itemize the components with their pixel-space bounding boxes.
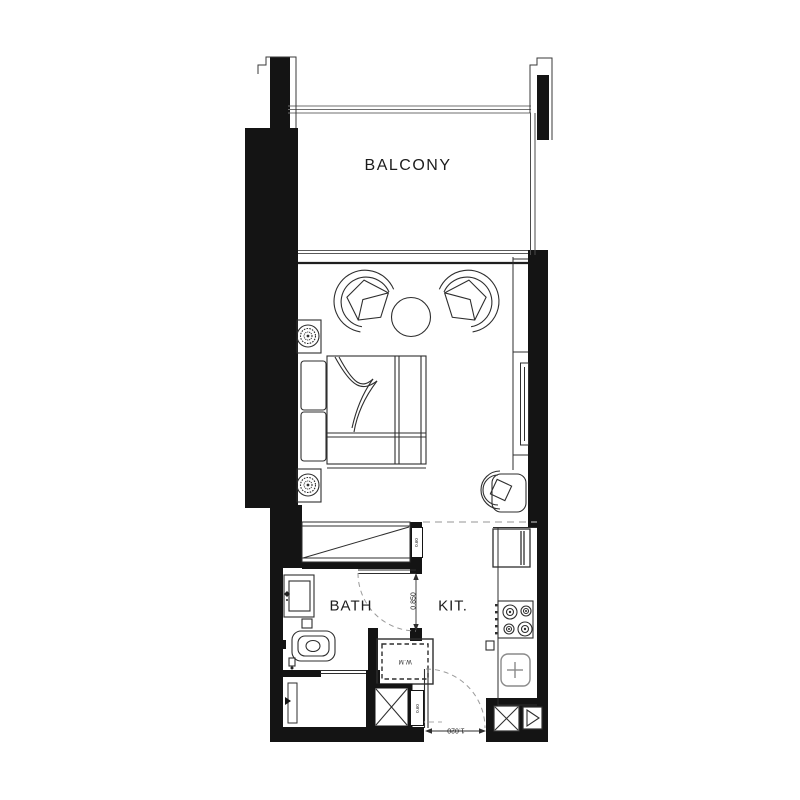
balcony-structure <box>258 57 552 255</box>
armchair-right <box>431 258 511 340</box>
shaft-label-bottom: 0.60 <box>414 704 419 713</box>
bed <box>301 356 426 468</box>
desk-chair <box>481 471 526 512</box>
floor-plan-drawing <box>0 0 800 800</box>
window-band <box>298 251 528 264</box>
shaft-label-top: 0.60 <box>414 538 419 547</box>
bath-fixtures <box>279 575 335 670</box>
washing-machine-label: W.M <box>398 658 412 664</box>
closet <box>302 522 410 562</box>
shaft-large <box>373 686 410 728</box>
nightstand-plant-top <box>297 320 321 353</box>
shaft-label-box-bottom: 0.60 <box>410 690 424 726</box>
stove <box>486 601 533 650</box>
kitchen-sink <box>501 654 530 686</box>
armchair-left <box>322 258 402 340</box>
lower-closet-room <box>285 671 366 724</box>
shaft-small <box>494 706 542 731</box>
balcony-label: BALCONY <box>365 157 452 175</box>
entry-door-dimension: 1.020 <box>447 727 465 734</box>
floor-plan: BALCONY BATH KIT. W.M 0.850 1.020 0.60 0… <box>0 0 800 800</box>
bath-label: BATH <box>330 598 373 615</box>
wardrobe <box>513 257 529 470</box>
kitchen-label: KIT. <box>438 598 468 615</box>
shaft-label-box-top: 0.60 <box>411 527 423 558</box>
fridge <box>493 529 530 567</box>
bath-door-dimension: 0.850 <box>411 592 418 610</box>
coffee-table <box>392 298 431 337</box>
nightstand-plant-bottom <box>297 469 321 502</box>
